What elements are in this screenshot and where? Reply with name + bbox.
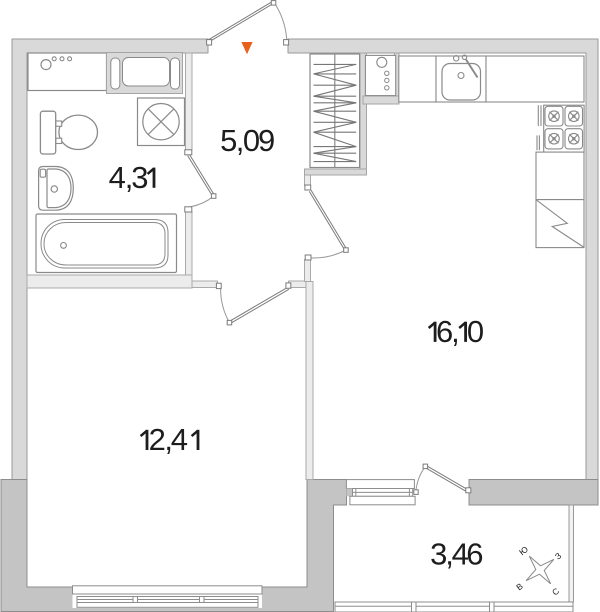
svg-text:9: 9 [258,123,275,158]
svg-text:0: 0 [467,314,484,349]
svg-text:2: 2 [149,422,166,457]
svg-text:4: 4 [171,422,188,457]
svg-text:,: , [451,314,460,349]
svg-text:3: 3 [131,160,148,195]
svg-text:4: 4 [109,160,126,195]
svg-text:6: 6 [466,536,483,571]
